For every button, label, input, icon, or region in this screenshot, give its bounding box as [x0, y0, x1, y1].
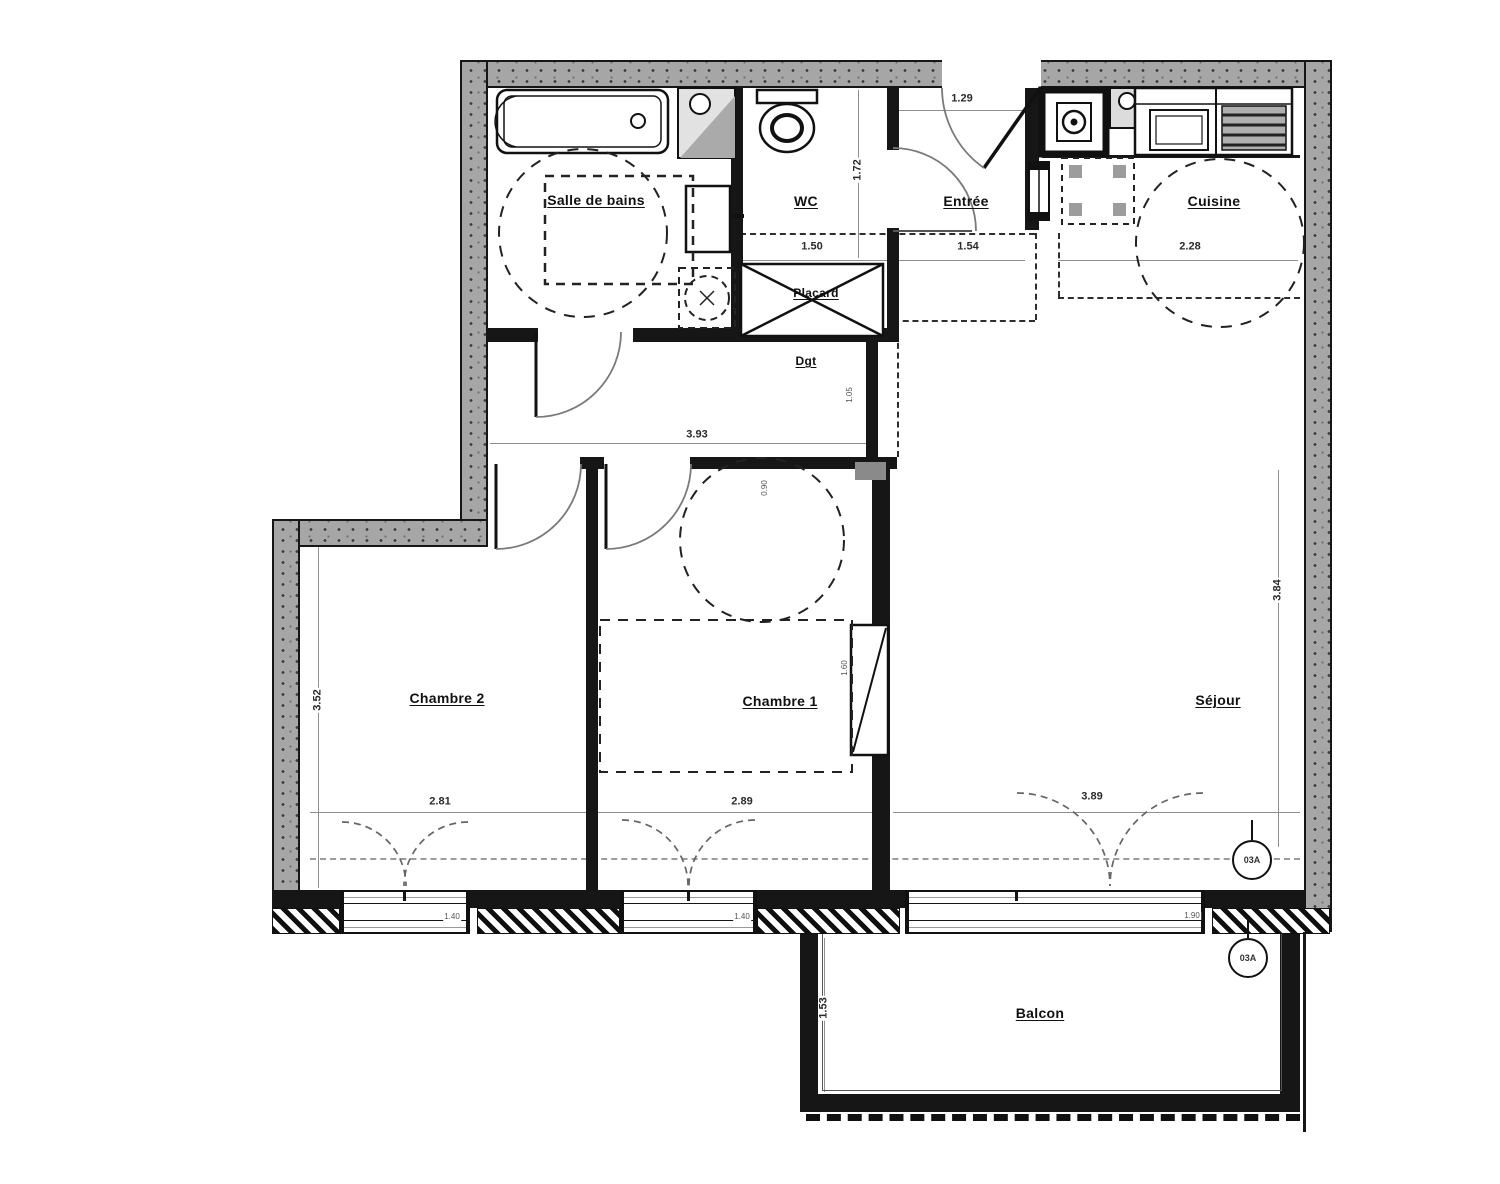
dim-dgt-width: 1.05 — [846, 386, 854, 404]
dim-chambre1-width: 2.89 — [729, 797, 754, 808]
room-label-salle-de-bains: Salle de bains — [547, 192, 645, 208]
wc-door-swing-arc — [893, 148, 976, 231]
window-chambre2-swing-right — [404, 822, 468, 886]
room-label-sejour: Séjour — [1195, 692, 1240, 708]
radiator-icon — [1029, 162, 1049, 220]
water-heater-icon — [1042, 90, 1106, 154]
reference-marker-balcon: 03A — [1228, 938, 1268, 978]
dim-window-chambre1: 1.40 — [733, 913, 751, 921]
dim-chambre2-depth: 3.52 — [313, 687, 324, 712]
window-sejour-swing-right — [1110, 793, 1203, 886]
dim-balcon-depth: 1.53 — [819, 995, 830, 1020]
dim-entree-top: 1.29 — [949, 94, 974, 105]
turning-circle-bathroom — [499, 149, 667, 317]
reference-marker-sejour: 03A — [1232, 840, 1272, 880]
dining-table-icon — [1062, 158, 1134, 224]
washing-machine-icon — [679, 268, 735, 328]
toilet-icon — [757, 90, 817, 152]
radiator-chambre1-icon — [855, 462, 886, 480]
kitchen-counter-icon — [1135, 88, 1292, 155]
room-label-chambre1: Chambre 1 — [742, 693, 817, 709]
window-chambre1-swing-right — [689, 820, 755, 886]
dim-wc-depth: 1.72 — [853, 157, 864, 182]
window-sejour-swing-left — [1017, 793, 1110, 886]
room-label-entree: Entrée — [943, 193, 988, 209]
dim-chambre2-width: 2.81 — [427, 797, 452, 808]
dim-window-chambre2: 1.40 — [443, 913, 461, 921]
room-label-cuisine: Cuisine — [1188, 193, 1241, 209]
wardrobe-icon — [851, 625, 888, 755]
dim-chambre1-closet: 1.60 — [841, 659, 849, 677]
dim-sejour-width: 3.89 — [1079, 792, 1104, 803]
chambre1-door-swing-arc — [606, 464, 691, 549]
window-chambre1-swing-left — [622, 820, 688, 886]
front-door-leaf — [984, 88, 1040, 168]
dim-wc-width: 1.50 — [799, 242, 824, 253]
room-label-chambre2: Chambre 2 — [409, 690, 484, 706]
room-label-wc: WC — [794, 193, 818, 209]
floor-plan: Salle de bains WC Entrée Cuisine Placard… — [0, 0, 1500, 1184]
dim-sejour-door: 1.90 — [1183, 912, 1201, 920]
dim-dgt-length: 3.93 — [684, 430, 709, 441]
washbasin-icon — [678, 88, 735, 158]
dim-sejour-depth: 3.84 — [1273, 577, 1284, 602]
dim-entree-width: 1.54 — [955, 242, 980, 253]
closet-cross-icon — [741, 264, 883, 336]
towel-radiator-icon — [686, 186, 744, 252]
chambre2-door-swing-arc — [496, 464, 581, 549]
bathtub-icon — [495, 90, 668, 153]
bathroom-door-swing-arc — [536, 332, 621, 417]
turning-circle-cuisine — [1136, 159, 1304, 327]
window-chambre2-swing-left — [342, 822, 406, 886]
room-label-dgt: Dgt — [796, 354, 817, 368]
room-label-placard: Placard — [793, 286, 838, 300]
dim-chambre1-door: 0.90 — [761, 479, 769, 497]
room-label-balcon: Balcon — [1016, 1005, 1064, 1021]
dim-cuisine-width: 2.28 — [1177, 242, 1202, 253]
